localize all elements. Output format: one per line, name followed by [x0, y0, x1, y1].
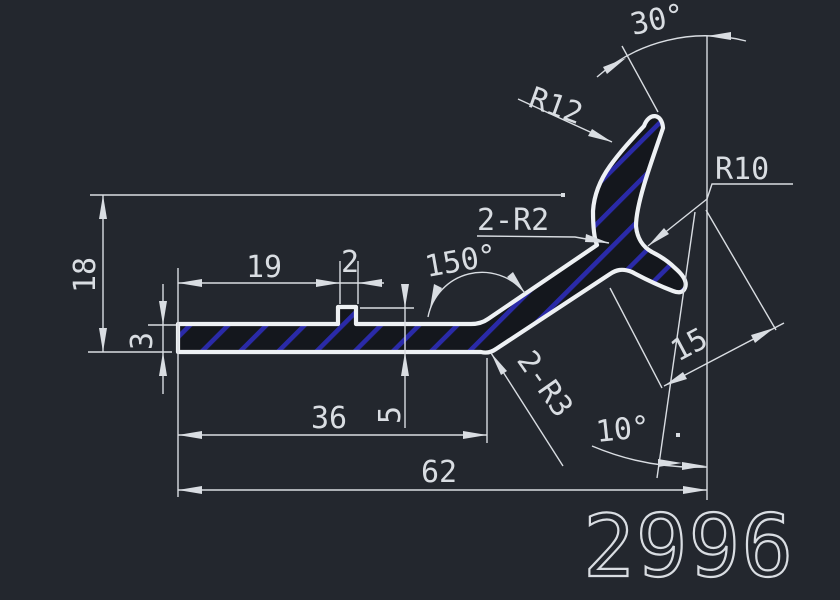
arrowhead [178, 279, 202, 287]
arrowhead [159, 301, 167, 325]
dim-3-label: 3 [125, 332, 160, 350]
dim-19[interactable]: 19 [178, 250, 384, 497]
arrowhead [751, 328, 774, 343]
arrowhead [316, 279, 340, 287]
dim-3[interactable]: 3 [125, 284, 176, 394]
dim-18-label: 18 [68, 257, 103, 293]
dim-30-label: 30° [627, 0, 687, 43]
arrowhead [463, 431, 487, 439]
arrowhead [664, 372, 687, 386]
dim-36[interactable]: 36 [178, 358, 487, 443]
arrowhead [507, 272, 525, 293]
extension-line [706, 210, 776, 330]
fillet-2r3-label: 2-R3 [509, 345, 579, 424]
cad-drawing[interactable]: 18 3 19 2 5 36 [0, 0, 840, 600]
arrowhead [588, 129, 612, 142]
dim-62[interactable]: 62 [178, 455, 707, 494]
arrowhead [683, 486, 707, 494]
arrowhead [707, 32, 731, 40]
arrowhead [401, 284, 409, 308]
leader-r10[interactable]: R10 [648, 152, 793, 246]
dim-2[interactable]: 2 [341, 245, 382, 304]
dim-2-label: 2 [341, 245, 359, 280]
angle-arc [597, 36, 746, 77]
dim-19-label: 19 [246, 250, 282, 285]
dim-62-label: 62 [421, 455, 457, 490]
radius-r12-label: R12 [524, 81, 587, 132]
fillet-2r2-label: 2-R2 [477, 203, 549, 238]
leader-2r3[interactable]: 2-R3 [491, 345, 580, 466]
part-number: 2996 [583, 497, 794, 597]
arrowhead [178, 431, 202, 439]
section-hatch [178, 116, 686, 352]
arrowhead [99, 195, 107, 219]
defpoint-dot [561, 193, 565, 197]
extension-line [610, 288, 662, 388]
dim-150-label: 150° [422, 238, 499, 285]
arrowhead [358, 279, 382, 287]
leader-2r2[interactable]: 2-R2 [477, 203, 609, 243]
arrowhead [159, 352, 167, 376]
defpoint-dot [676, 433, 680, 437]
arrowhead [682, 462, 706, 470]
arrowhead [648, 228, 669, 246]
cad-canvas[interactable]: 18 3 19 2 5 36 [0, 0, 840, 600]
arrowhead [99, 328, 107, 352]
profile-section[interactable] [178, 116, 686, 352]
dim-5-label: 5 [373, 406, 408, 424]
radius-r10-label: R10 [715, 152, 769, 187]
leader-line [648, 184, 793, 246]
dim-10-label: 10° [594, 409, 652, 449]
dim-5[interactable]: 5 [360, 284, 414, 428]
arrowhead [491, 353, 507, 375]
arrowhead [430, 284, 442, 308]
leader-r12[interactable]: R12 [518, 81, 612, 142]
arrowhead [603, 58, 626, 74]
arrowhead [401, 352, 409, 376]
dim-36-label: 36 [311, 401, 347, 436]
arrowhead [178, 486, 202, 494]
